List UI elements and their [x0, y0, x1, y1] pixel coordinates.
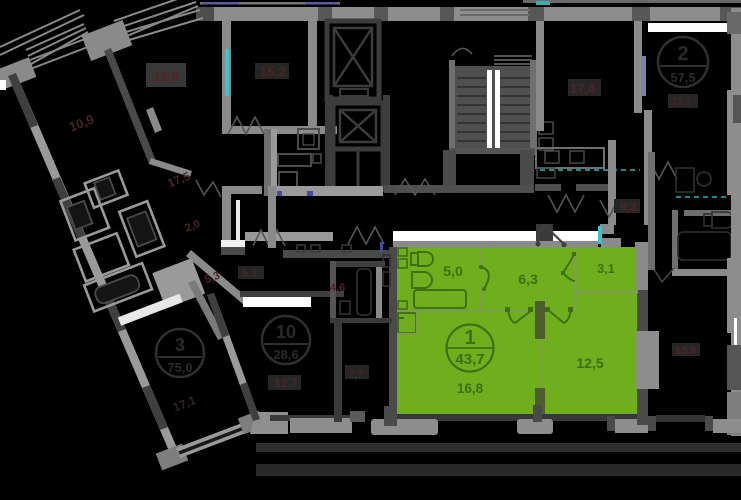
svg-text:16,8: 16,8 [457, 381, 484, 396]
svg-text:9,2: 9,2 [620, 200, 637, 214]
svg-text:12,7: 12,7 [274, 376, 298, 390]
svg-text:1: 1 [464, 327, 475, 349]
svg-text:7,7: 7,7 [348, 369, 363, 381]
svg-text:13,1: 13,1 [671, 96, 692, 108]
svg-text:12,6: 12,6 [153, 69, 178, 84]
svg-text:28,6: 28,6 [273, 347, 298, 362]
svg-text:5,0: 5,0 [443, 263, 463, 279]
svg-text:5,3: 5,3 [242, 268, 257, 280]
svg-text:10: 10 [276, 322, 296, 342]
svg-text:12,5: 12,5 [576, 355, 603, 371]
svg-text:57,5: 57,5 [670, 70, 695, 85]
svg-text:15,2: 15,2 [260, 64, 285, 79]
svg-text:4,6: 4,6 [330, 282, 345, 294]
svg-text:2: 2 [677, 43, 688, 65]
svg-text:17,4: 17,4 [570, 81, 596, 96]
svg-text:3,1: 3,1 [597, 262, 614, 276]
svg-text:43,7: 43,7 [455, 351, 484, 368]
svg-text:75,0: 75,0 [167, 360, 192, 375]
svg-text:3: 3 [175, 335, 185, 355]
svg-text:13,9: 13,9 [675, 345, 696, 357]
svg-text:6,3: 6,3 [518, 271, 538, 287]
